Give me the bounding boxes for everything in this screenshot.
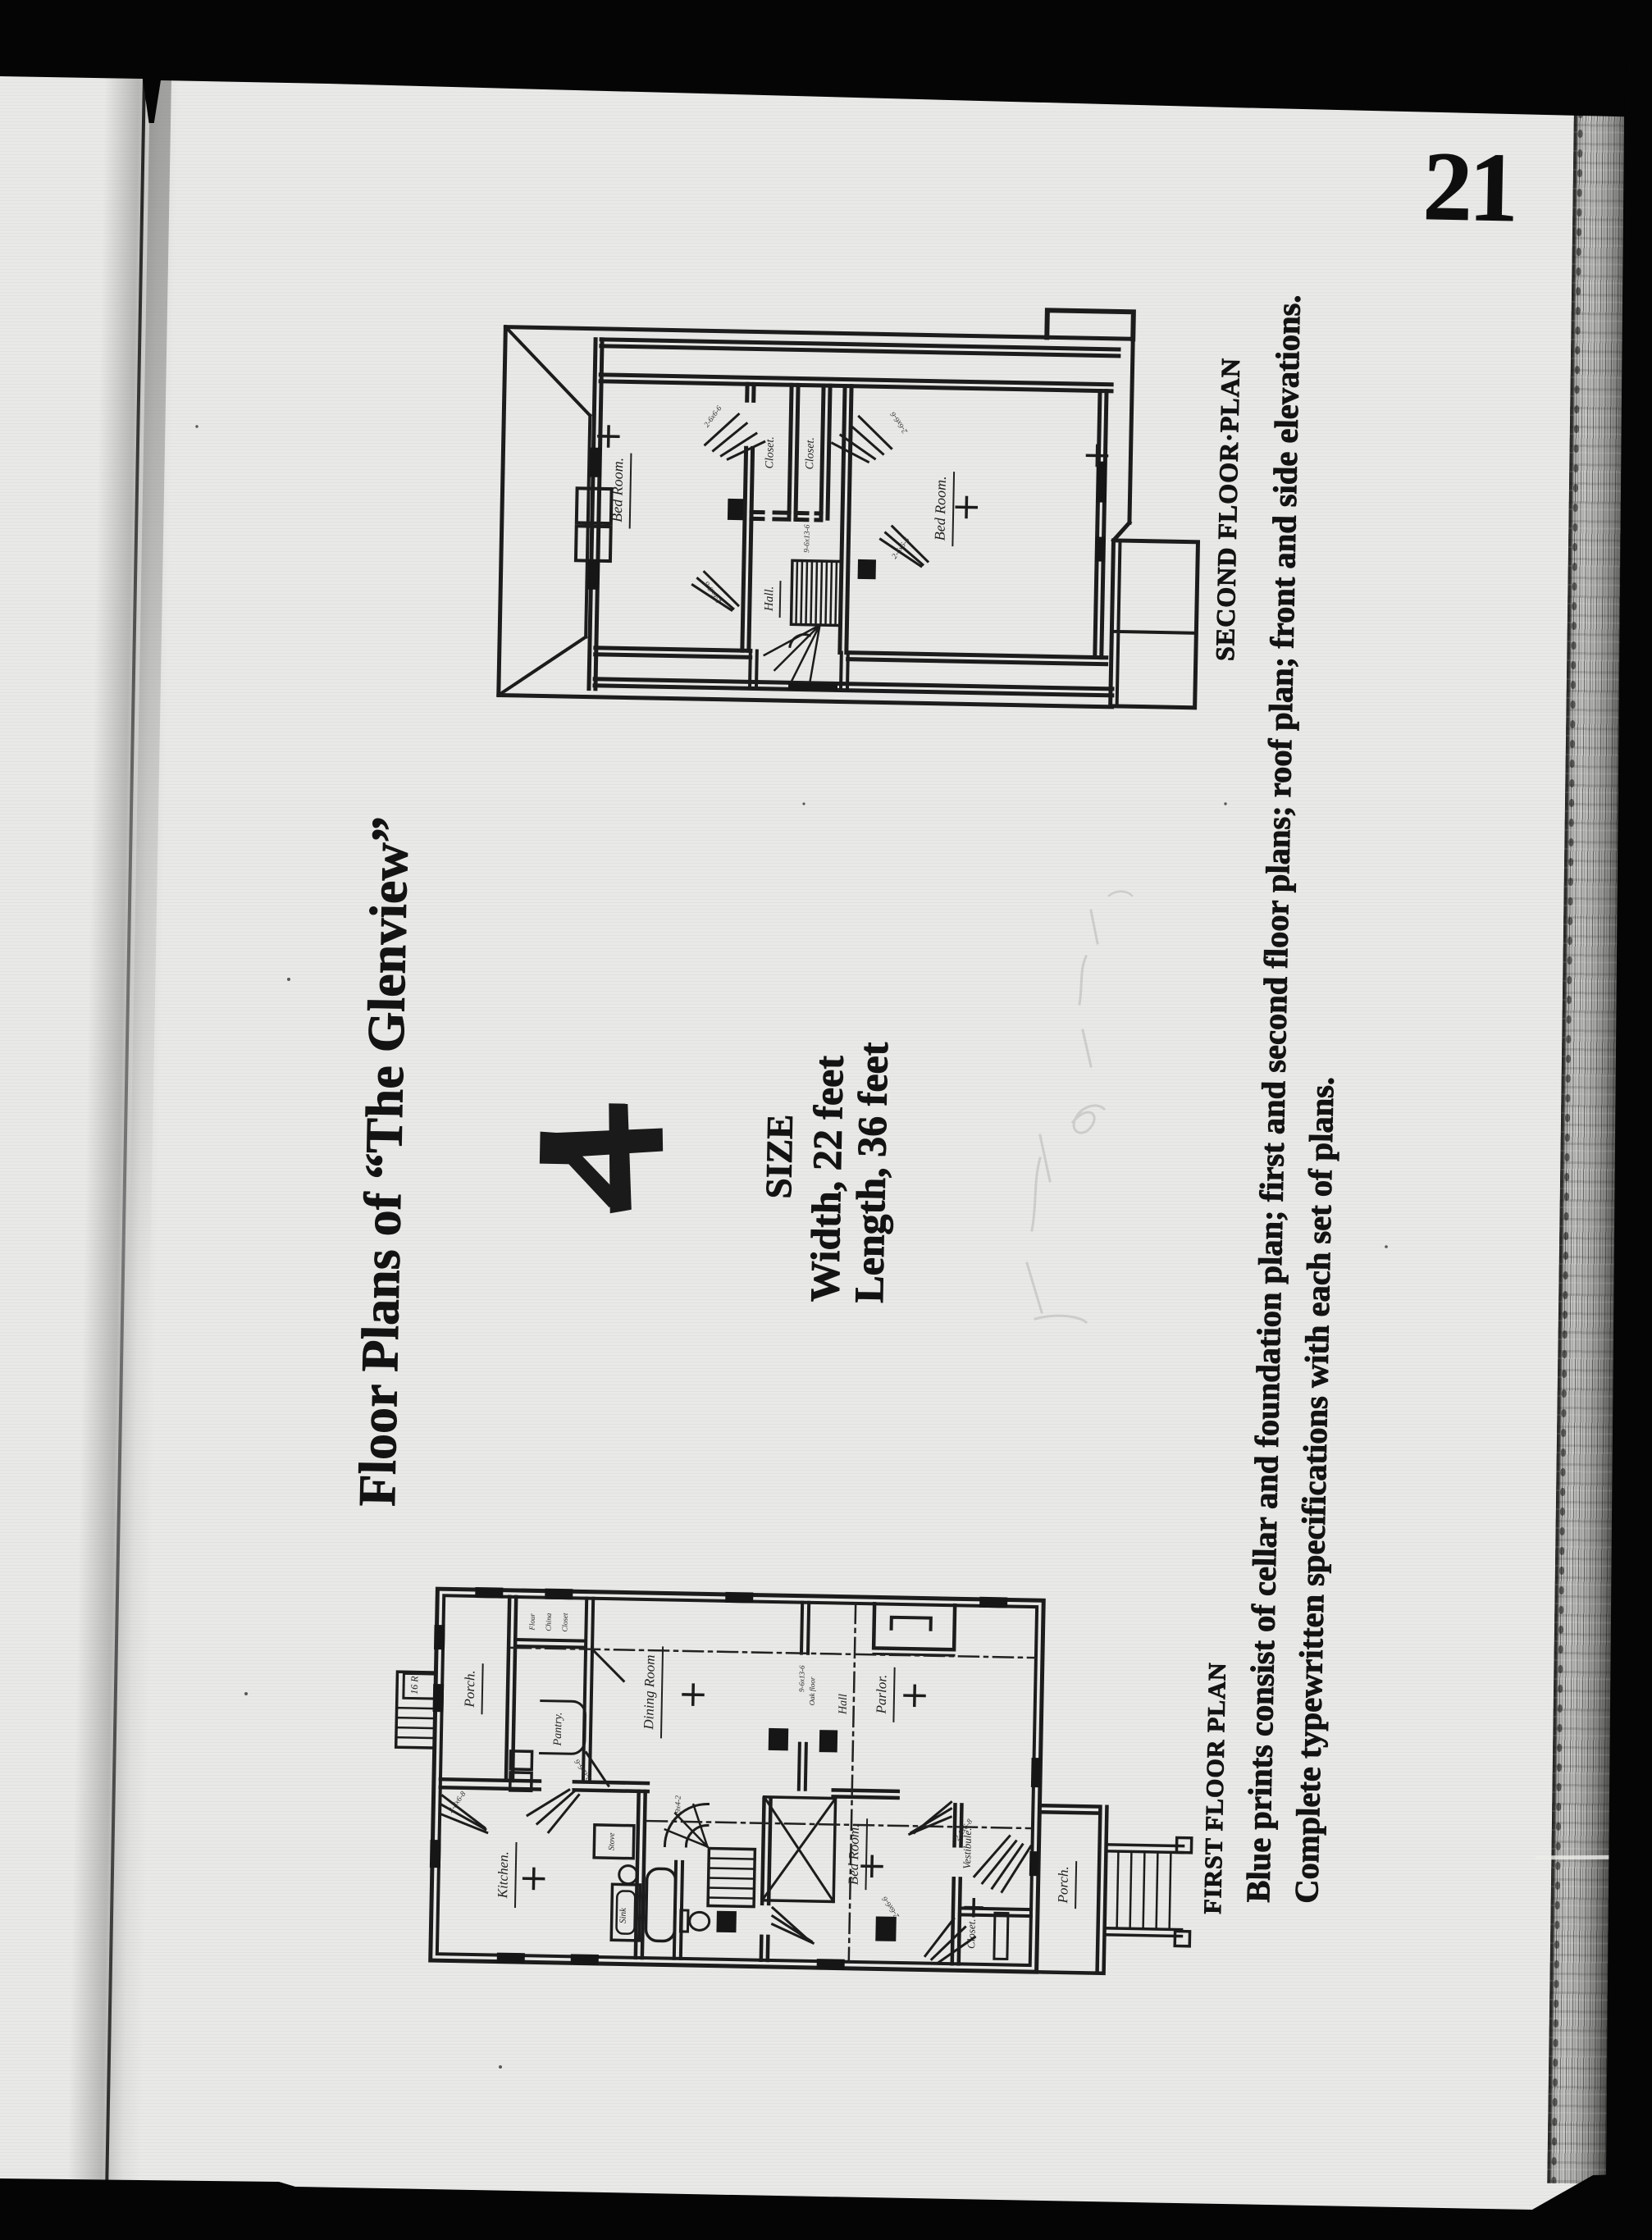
svg-text:Hall: Hall (837, 1694, 850, 1715)
svg-text:Closet: Closet (560, 1613, 568, 1632)
svg-text:Oak floor: Oak floor (808, 1677, 817, 1705)
svg-text:2-6x6-6: 2-6x6-6 (881, 1895, 901, 1919)
svg-text:Kitchen.: Kitchen. (495, 1851, 511, 1899)
svg-text:China: China (544, 1613, 552, 1631)
svg-text:Closet.: Closet. (764, 436, 777, 469)
svg-text:Hall.: Hall. (763, 586, 777, 612)
svg-text:Pantry.: Pantry. (552, 1712, 565, 1746)
svg-text:Flour: Flour (527, 1613, 536, 1631)
svg-text:Closet.: Closet. (804, 437, 817, 470)
svg-text:Stove: Stove (607, 1832, 616, 1850)
svg-text:2-6x6-6: 2-6x6-6 (703, 579, 723, 604)
svg-text:Porch.: Porch. (462, 1670, 478, 1709)
svg-text:Sink: Sink (618, 1907, 628, 1923)
svg-text:9-6x13-6: 9-6x13-6 (803, 524, 812, 553)
svg-text:2-6x6-6: 2-6x6-6 (889, 410, 910, 435)
svg-text:Porch.: Porch. (1055, 1866, 1071, 1905)
svg-text:Bed Room.: Bed Room. (931, 476, 949, 541)
svg-text:Dining Room: Dining Room (641, 1654, 658, 1730)
svg-text:16 R: 16 R (408, 1676, 420, 1695)
svg-text:Parlor.: Parlor. (874, 1674, 890, 1714)
svg-text:9-6x13-6: 9-6x13-6 (797, 1665, 806, 1692)
svg-text:Bed Room.: Bed Room. (846, 1823, 862, 1885)
svg-text:1-9x4-2: 1-9x4-2 (674, 1795, 683, 1820)
svg-text:Closet.: Closet. (965, 1918, 978, 1949)
svg-text:2-6x6-6: 2-6x6-6 (703, 404, 724, 429)
svg-text:Bed Room.: Bed Room. (609, 458, 627, 522)
